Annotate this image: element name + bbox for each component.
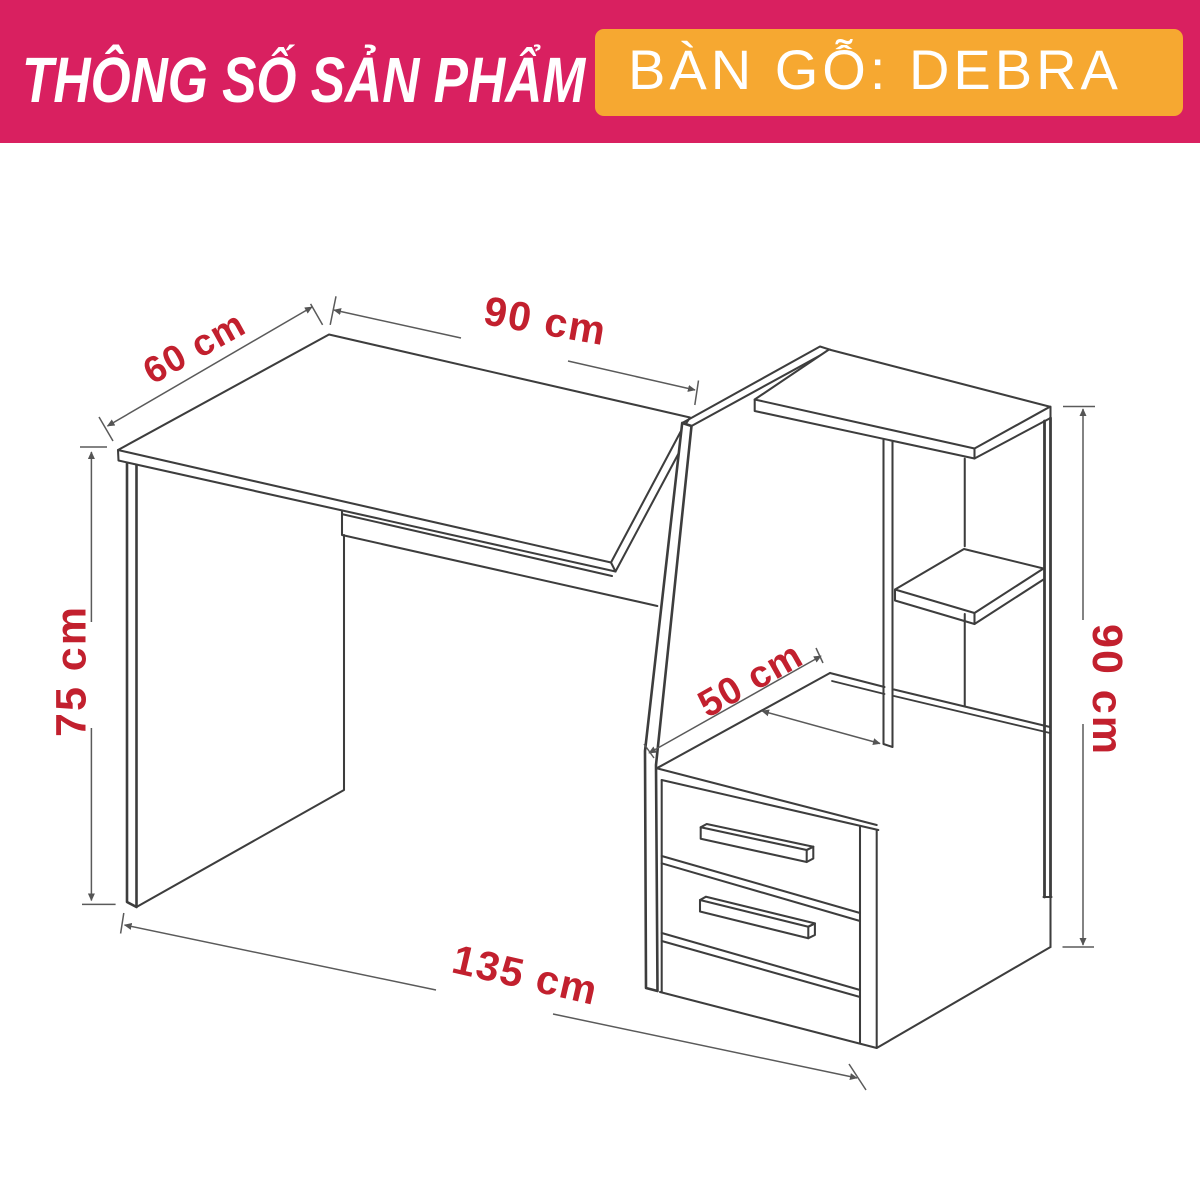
svg-text:50 cm: 50 cm [691, 634, 810, 726]
svg-text:75 cm: 75 cm [48, 605, 96, 737]
svg-text:90 cm: 90 cm [481, 287, 611, 354]
svg-text:135 cm: 135 cm [448, 936, 603, 1014]
svg-text:60 cm: 60 cm [136, 303, 252, 392]
svg-text:90 cm: 90 cm [1083, 624, 1131, 756]
